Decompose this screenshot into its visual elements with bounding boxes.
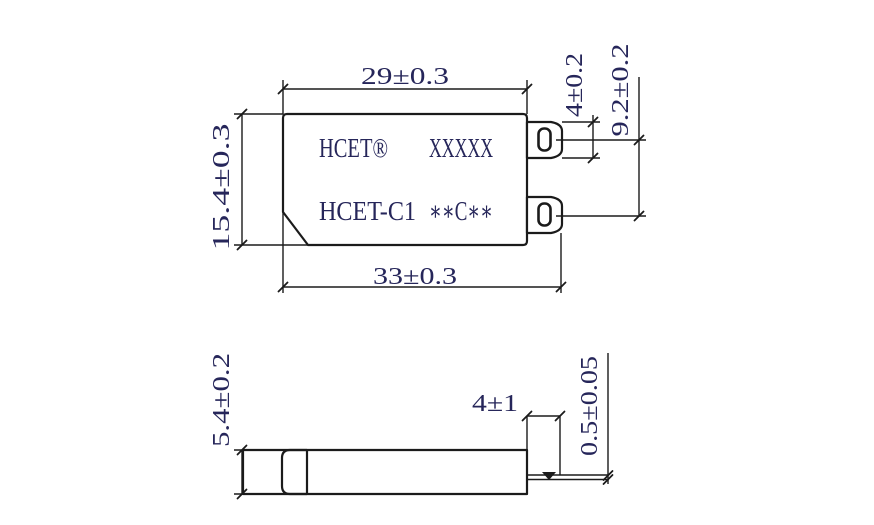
marking-brand: HCET®: [319, 133, 388, 163]
engineering-drawing-page: HCET® XXXXX HCET-C1 ∗∗C∗∗ 29±0.3 15.4±0.…: [0, 0, 874, 525]
dim-terminal-width-label: 4±0.2: [562, 53, 588, 117]
terminal-top-slot: [539, 129, 551, 151]
dim-height-left-label: 15.4±0.3: [209, 123, 235, 250]
dim-width-bottom-label: 33±0.3: [373, 264, 457, 290]
dim-terminal-pitch-label: 9.2±0.2: [608, 44, 634, 137]
marking-rating: ∗∗C∗∗: [429, 196, 493, 226]
dim-body-thickness-label: 5.4±0.2: [209, 353, 235, 447]
drawing-canvas: HCET® XXXXX HCET-C1 ∗∗C∗∗ 29±0.3 15.4±0.…: [0, 0, 874, 525]
dim-terminal-thickness-label: 0.5±0.05: [577, 356, 603, 456]
marking-code: XXXXX: [429, 133, 493, 163]
side-body-outline: [243, 450, 527, 494]
dim-terminal-length-label: 4±1: [472, 391, 518, 417]
marking-model: HCET-C1: [319, 196, 416, 226]
dim-width-top-label: 29±0.3: [361, 64, 449, 90]
terminal-bottom-slot: [539, 204, 551, 226]
